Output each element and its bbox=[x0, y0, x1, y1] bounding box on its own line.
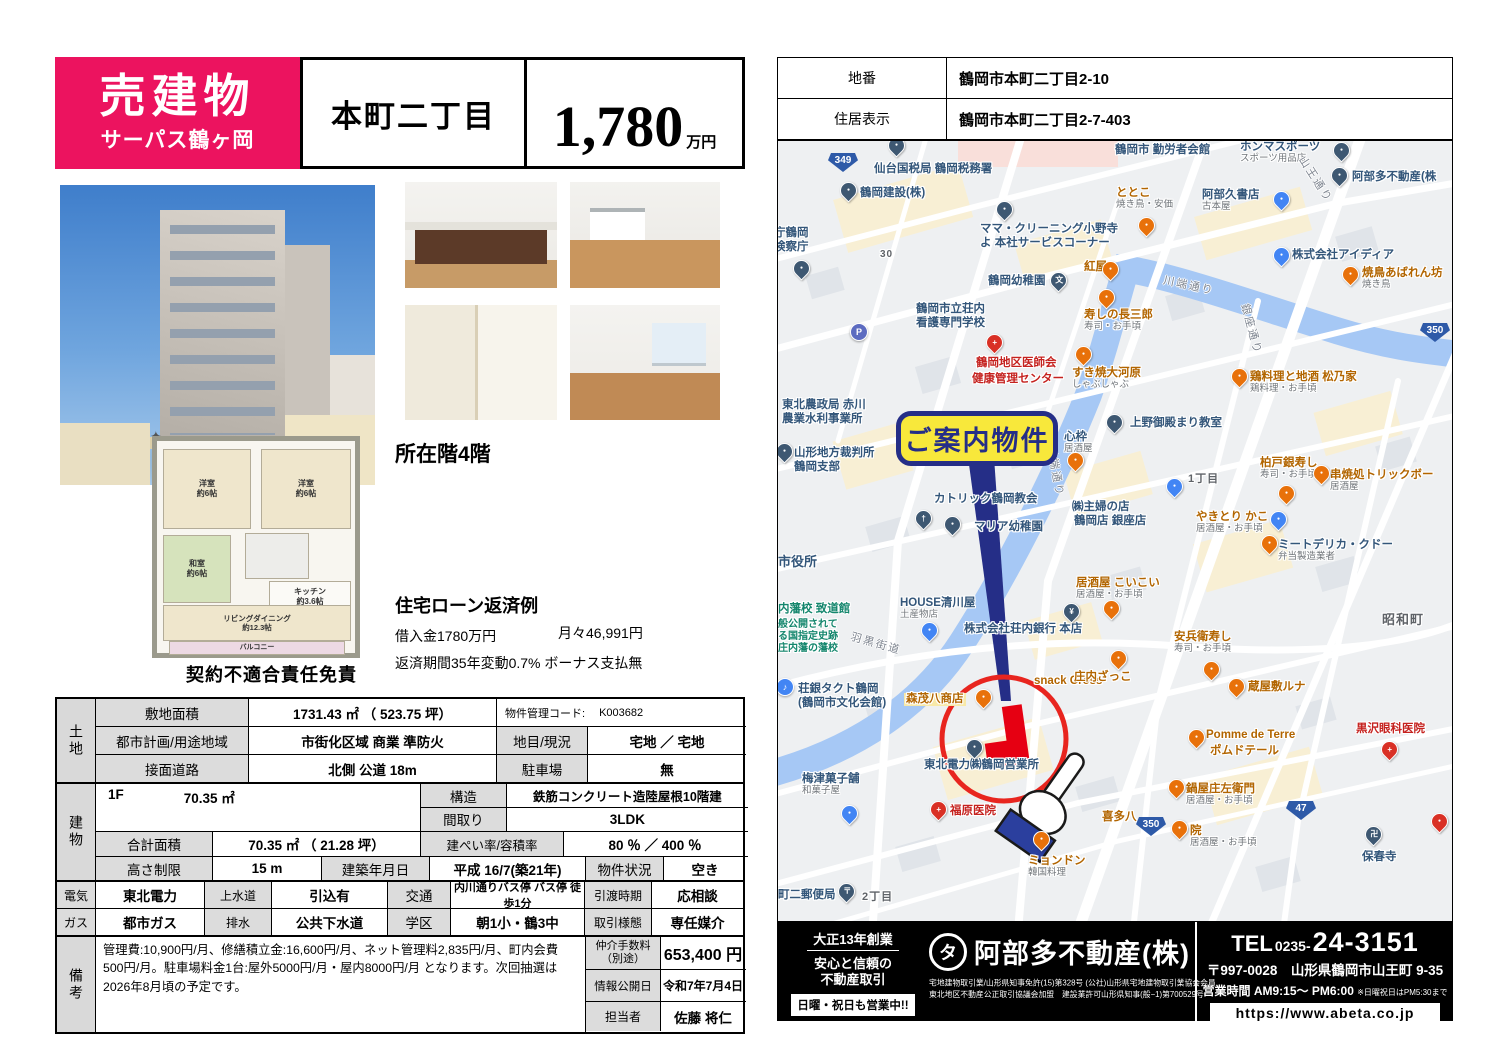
map-pin-food-icon[interactable]: ● bbox=[1184, 725, 1208, 749]
total-area-label: 合計面積 bbox=[96, 832, 212, 856]
map-pin-shop-icon[interactable]: ● bbox=[917, 618, 941, 642]
remarks-section-label: 備考 bbox=[57, 937, 96, 1032]
slogan-text: 安心と信頼の 不動産取引 bbox=[814, 956, 892, 989]
hours-note: ※日曜祝日はPM5:30まで bbox=[1357, 988, 1447, 997]
website-url[interactable]: https://www.abeta.co.jp bbox=[1210, 1003, 1441, 1023]
map-pin-poi-icon[interactable]: 文 bbox=[1046, 268, 1070, 292]
map-label[interactable]: 農業水利事業所 bbox=[782, 413, 863, 426]
land-section-label: 土地 bbox=[57, 699, 96, 782]
building-name: サーパス鶴ヶ岡 bbox=[101, 124, 255, 154]
map-label[interactable]: 町二郵便局 bbox=[778, 889, 836, 902]
lot-number-value: 鶴岡市本町二丁目2-10 bbox=[946, 58, 1452, 98]
remarks-section: 備考 管理費:10,900円/月、修繕積立金:16,600円/月、ネット管理料2… bbox=[55, 937, 745, 1034]
slogan-line2: 不動産取引 bbox=[820, 972, 885, 987]
transport-label: 交通 bbox=[387, 882, 450, 908]
map-label[interactable]: 梅津菓子舗和菓子屋 bbox=[802, 773, 860, 797]
company-name: 阿部多不動産(株) bbox=[974, 932, 1190, 971]
land-area-value: 1731.43 ㎡ （ 523.75 坪） bbox=[248, 699, 496, 726]
sale-type-banner: 売建物 サーパス鶴ヶ岡 bbox=[55, 57, 300, 169]
map-label[interactable]: 東北農政局 赤川 bbox=[782, 399, 866, 412]
map-pin-poi-icon[interactable]: 〒 bbox=[834, 879, 858, 903]
floorplan-bedroom2: 洋室 約6帖 bbox=[261, 449, 351, 529]
location-title: 本町二丁目 bbox=[300, 57, 527, 169]
tel-number: 24-3151 bbox=[1313, 927, 1419, 958]
map-pin-food-icon[interactable]: ● bbox=[971, 685, 995, 709]
map-label[interactable]: ミートデリカ・クドー弁当製造業者 bbox=[1278, 539, 1393, 563]
map-pin-red-icon[interactable]: + bbox=[982, 330, 1006, 354]
loan-amount: 借入金1780万円 bbox=[395, 626, 496, 646]
map-pin-food-icon[interactable]: ● bbox=[1199, 657, 1223, 681]
residence-row: 住居表示 鶴岡市本町二丁目2-7-403 bbox=[778, 98, 1452, 139]
map-pin-poi-icon[interactable]: ● bbox=[789, 256, 813, 280]
map-pin-poi-icon[interactable]: 卍 bbox=[1361, 822, 1385, 846]
license-info: 宅地建物取引業/山形県知事免許(15)第328号 (公社)山形県宅地建物取引業協… bbox=[929, 977, 1174, 1000]
handover-label: 引渡時期 bbox=[584, 882, 651, 908]
publish-date-value: 令和7年7月4日 bbox=[660, 970, 745, 1001]
map-pin-red-icon[interactable]: + bbox=[1377, 737, 1401, 761]
map-label[interactable]: 庄内藩の藩校 bbox=[778, 643, 838, 655]
loan-terms: 返済期間35年変動0.7% ボーナス支払無 bbox=[395, 653, 642, 673]
map-label[interactable]: 保春寺 bbox=[1362, 851, 1397, 864]
map-label[interactable]: 般公開されて bbox=[778, 619, 838, 631]
transaction-value: 専任媒介 bbox=[651, 909, 743, 935]
utilities-section: 電気 東北電力 上水道 引込有 交通 内川通りバス停 バス停 徒歩1分 引渡時期… bbox=[55, 882, 745, 937]
map-pin-poi-icon[interactable]: ¥ bbox=[1059, 599, 1083, 623]
map-label[interactable]: 喜多八 bbox=[1102, 811, 1137, 824]
map-pin-shop-icon[interactable]: ● bbox=[1269, 243, 1293, 267]
map-label[interactable]: 鶴岡店 銀座店 bbox=[1074, 515, 1146, 528]
tel-area-code: 0235- bbox=[1275, 938, 1311, 954]
map-label[interactable]: カトリック鶴岡教会 bbox=[934, 493, 1038, 506]
map-label[interactable]: 昭和町 bbox=[1382, 613, 1424, 628]
address-table: 地番 鶴岡市本町二丁目2-10 住居表示 鶴岡市本町二丁目2-7-403 bbox=[777, 57, 1453, 140]
map-pin-poi-icon[interactable]: ● bbox=[992, 197, 1016, 221]
layout-value: 3LDK bbox=[506, 808, 748, 831]
map-label[interactable]: 鶴岡市 勤労者会館 bbox=[1115, 144, 1210, 157]
parking-value: 無 bbox=[587, 755, 746, 782]
residence-label: 住居表示 bbox=[778, 99, 946, 139]
hours-text: 営業時間 AM9:15〜 PM6:00 bbox=[1203, 984, 1354, 998]
map-label[interactable]: 鶴岡支部 bbox=[794, 461, 840, 474]
footer-contact: TEL 0235- 24-3151 〒997-0028 山形県鶴岡市山王町 9-… bbox=[1195, 922, 1453, 1021]
map-pin-food-icon[interactable]: ● bbox=[1227, 364, 1251, 388]
agent-label: 担当者 bbox=[586, 1002, 660, 1031]
land-category-value: 宅地 ／ 宅地 bbox=[587, 727, 746, 754]
map-label[interactable]: 東北電力㈱鶴岡営業所 bbox=[924, 759, 1039, 772]
agent-value: 佐藤 将仁 bbox=[660, 1002, 745, 1031]
map-label[interactable]: 柏戸銀寿し寿司・お手頃 bbox=[1260, 457, 1318, 481]
map-pin-food-icon[interactable]: ● bbox=[1338, 262, 1362, 286]
map-label[interactable]: ママ・クリーニング小野寺 bbox=[980, 223, 1118, 236]
photo-living-dining bbox=[570, 182, 720, 288]
map-pin-food-icon[interactable]: ● bbox=[1274, 481, 1298, 505]
map-label[interactable]: 1丁目 bbox=[1188, 473, 1219, 486]
land-section: 土地 敷地面積 1731.43 ㎡ （ 523.75 坪） 物件管理コード: K… bbox=[55, 697, 745, 784]
map-label[interactable]: 2丁目 bbox=[862, 891, 893, 904]
map-label[interactable]: 健康管理センター bbox=[972, 373, 1064, 386]
map-pin-poi-icon[interactable]: ● bbox=[884, 140, 908, 158]
route-badge: 47 bbox=[1286, 801, 1316, 820]
map-label[interactable]: ミョンドン韓国料理 bbox=[1028, 855, 1086, 879]
status-value: 空き bbox=[663, 857, 746, 880]
spec-table: 土地 敷地面積 1731.43 ㎡ （ 523.75 坪） 物件管理コード: K… bbox=[55, 697, 745, 1034]
map-label[interactable]: 院居酒屋・お手頃 bbox=[1190, 825, 1257, 849]
map-label[interactable]: 焼鳥あばれん坊焼き鳥 bbox=[1362, 267, 1443, 291]
map-label[interactable]: 串焼処トリックボー居酒屋 bbox=[1330, 469, 1434, 493]
broker-fee-value: 653,400 円 bbox=[660, 937, 745, 969]
established-text: 大正13年創業 bbox=[807, 929, 898, 951]
loan-example-title: 住宅ローン返済例 bbox=[395, 592, 538, 618]
map-pin-poi-icon[interactable]: † bbox=[911, 506, 935, 530]
floor-plan: 洋室 約6帖 洋室 約6帖 和室 約6帖 キッチン 約3.6帖 リビングダイニン… bbox=[152, 436, 360, 658]
zoning-label: 都市計画/用途地域 bbox=[96, 727, 248, 754]
map[interactable]: 鶴岡市 勤労者会館ホンマスポーツスポーツ用品店阿部多不動産(株仙台国税局 鶴岡税… bbox=[777, 140, 1453, 922]
map-label[interactable]: 市役所 bbox=[778, 555, 817, 570]
map-label[interactable]: 阿部久書店古本屋 bbox=[1202, 189, 1260, 213]
floorplan-japanese-room: 和室 約6帖 bbox=[163, 535, 231, 603]
school-label: 学区 bbox=[387, 909, 450, 935]
status-label: 物件状況 bbox=[585, 857, 663, 880]
map-label[interactable]: 株式会社荘内銀行 本店 bbox=[964, 623, 1082, 636]
height-limit-label: 高さ制限 bbox=[96, 857, 212, 880]
structure-value: 鉄筋コンクリート造陸屋根10階建 bbox=[506, 784, 748, 807]
map-label[interactable]: 上野御殿まり教室 bbox=[1130, 417, 1222, 430]
map-overlay: 鶴岡市 勤労者会館ホンマスポーツスポーツ用品店阿部多不動産(株仙台国税局 鶴岡税… bbox=[778, 141, 1452, 921]
price-value: 1,780 bbox=[553, 98, 684, 156]
map-label[interactable]: 検察庁 bbox=[777, 241, 809, 254]
map-label[interactable]: 株式会社アイディア bbox=[1292, 249, 1394, 262]
electric-value: 東北電力 bbox=[95, 882, 204, 908]
map-pin-shop-icon[interactable]: ● bbox=[1269, 187, 1293, 211]
map-label[interactable]: 鍋屋庄左衛門居酒屋・お手頃 bbox=[1186, 783, 1255, 807]
map-pin-red-icon[interactable]: + bbox=[926, 797, 950, 821]
map-label[interactable]: ㈱主婦の店 bbox=[1072, 501, 1130, 514]
photo-kitchen bbox=[405, 182, 557, 288]
map-label[interactable]: 居酒屋 こいこい居酒屋・お手頃 bbox=[1076, 577, 1160, 601]
footer-left: 大正13年創業 安心と信頼の 不動産取引 日曜・祝日も営業中!! bbox=[777, 922, 929, 1021]
map-label[interactable]: 黒沢眼科医院 bbox=[1356, 723, 1425, 736]
road-frontage-label: 接面道路 bbox=[96, 755, 248, 782]
map-pin-shop-icon[interactable]: ● bbox=[1162, 474, 1186, 498]
map-label[interactable]: 鶴岡地区医師会 bbox=[976, 357, 1057, 370]
map-label[interactable]: 鶴岡幼稚園 bbox=[988, 275, 1046, 288]
building-section: 建物 1F 70.35 ㎡ 構造 鉄筋コンクリート造陸屋根10階建 間取り bbox=[55, 784, 745, 882]
page: 売建物 サーパス鶴ヶ岡 本町二丁目 1,780 万円 ✦ 洋室 約6帖 洋室 約… bbox=[0, 0, 1505, 1063]
road-label: 銀座通り bbox=[1238, 302, 1267, 356]
floorplan-living-dining: リビングダイニング 約12.3帖 bbox=[163, 605, 351, 641]
building-section-label: 建物 bbox=[57, 784, 96, 880]
map-pin-food-icon[interactable]: ● bbox=[1164, 775, 1188, 799]
floor1-area-cell: 1F 70.35 ㎡ bbox=[96, 784, 420, 831]
school-value: 朝1小・鶴3中 bbox=[450, 909, 584, 935]
road-label: 川端通り bbox=[1162, 272, 1216, 298]
land-category-label: 地目/現況 bbox=[496, 727, 587, 754]
license-line1: 宅地建物取引業/山形県知事免許(15)第328号 (公社)山形県宅地建物取引業協… bbox=[929, 978, 1216, 987]
tel-label: TEL bbox=[1231, 931, 1273, 957]
map-pin-poi-icon[interactable]: ● bbox=[1329, 140, 1353, 163]
company-address: 〒997-0028 山形県鶴岡市山王町 9-35 bbox=[1207, 959, 1443, 979]
business-hours: 営業時間 AM9:15〜 PM6:00 ※日曜祝日はPM5:30まで bbox=[1203, 982, 1448, 999]
floorplan-bedroom1: 洋室 約6帖 bbox=[163, 449, 251, 529]
floorplan-bath bbox=[245, 533, 309, 579]
phone-number: TEL 0235- 24-3151 bbox=[1231, 927, 1418, 958]
handover-value: 応相談 bbox=[651, 882, 743, 908]
property-code-label: 物件管理コード: bbox=[505, 705, 585, 721]
total-area-value: 70.35 ㎡ （ 21.28 坪） bbox=[212, 832, 420, 856]
map-label[interactable]: 庁鶴岡 bbox=[777, 227, 809, 240]
map-pin-shop-icon[interactable]: ● bbox=[1266, 507, 1290, 531]
slogan-line1: 安心と信頼の bbox=[814, 956, 892, 971]
map-label[interactable]: 荘銀タクト鶴岡 bbox=[798, 683, 879, 696]
route-badge: 350 bbox=[1136, 817, 1166, 836]
map-label[interactable]: ととこ焼き鳥・安価 bbox=[1116, 187, 1173, 211]
coverage-ratio-label: 建ぺい率/容積率 bbox=[420, 832, 563, 856]
listing-header: 売建物 サーパス鶴ヶ岡 本町二丁目 1,780 万円 bbox=[55, 57, 745, 169]
coverage-ratio-value: 80 ％ ／ 400 ％ bbox=[563, 832, 746, 856]
floor-location: 所在階4階 bbox=[395, 438, 491, 468]
water-value: 引込有 bbox=[271, 882, 387, 908]
map-pin-shop-icon[interactable]: ● bbox=[837, 801, 861, 825]
map-label[interactable]: HOUSE清川屋土産物店 bbox=[900, 597, 975, 621]
map-pin-food-icon[interactable]: ● bbox=[1071, 342, 1095, 366]
map-label[interactable]: 山形地方裁判所 bbox=[794, 447, 875, 460]
map-label[interactable]: 鶏料理と地酒 松乃家鶏料理・お手頃 bbox=[1250, 371, 1357, 395]
map-pin-food-icon[interactable]: ● bbox=[1167, 816, 1191, 840]
parking-label: 駐車場 bbox=[496, 755, 587, 782]
map-pin-music-icon[interactable]: ♪ bbox=[777, 678, 794, 696]
property-callout: ご案内物件 bbox=[896, 411, 1058, 466]
floorplan-balcony: バルコニー bbox=[169, 641, 345, 655]
lot-number-row: 地番 鶴岡市本町二丁目2-10 bbox=[778, 58, 1452, 98]
floor1-label: 1F bbox=[108, 787, 124, 802]
map-label[interactable]: 阿部多不動産(株 bbox=[1352, 171, 1436, 184]
map-label[interactable]: マリア幼稚園 bbox=[974, 521, 1043, 534]
price-unit: 万円 bbox=[686, 131, 716, 152]
map-label[interactable]: 蔵屋敷ルナ bbox=[1248, 681, 1306, 694]
map-label[interactable]: やきとり かこ居酒屋・お手頃 bbox=[1196, 511, 1268, 535]
map-label[interactable]: る国指定史跡 bbox=[778, 631, 838, 643]
price-box: 1,780 万円 bbox=[527, 57, 745, 169]
map-label[interactable]: 福原医院 bbox=[950, 805, 996, 818]
map-pin-food-icon[interactable]: ● bbox=[1094, 285, 1118, 309]
map-label[interactable]: 30 bbox=[880, 249, 893, 261]
map-pin-food-icon[interactable]: ● bbox=[1134, 213, 1158, 237]
company-logo: タ bbox=[929, 933, 967, 971]
property-code-cell: 物件管理コード: K003682 bbox=[496, 699, 746, 726]
road-frontage-value: 北側 公道 18m bbox=[248, 755, 496, 782]
built-date-value: 平成 16/7(築21年) bbox=[429, 857, 585, 880]
map-label[interactable]: ポムドテール bbox=[1210, 745, 1279, 758]
map-pin-park-icon[interactable]: P bbox=[850, 323, 868, 341]
map-label[interactable]: 鶴岡建設(株) bbox=[860, 187, 925, 200]
route-badge: 350 bbox=[1420, 323, 1450, 342]
contract-disclaimer: 契約不適合責任免責 bbox=[186, 661, 357, 687]
footer-brand: タ 阿部多不動産(株) 宅地建物取引業/山形県知事免許(15)第328号 (公社… bbox=[929, 922, 1195, 1021]
map-label[interactable]: 鶴岡市立荘内 bbox=[916, 303, 985, 316]
map-pin-food-icon[interactable]: ● bbox=[1029, 827, 1053, 851]
map-label[interactable]: 庄内ざっこ bbox=[1074, 671, 1132, 684]
map-label[interactable]: 安兵衛寿し寿司・お手頃 bbox=[1174, 631, 1232, 655]
license-line2: 東北地区不動産公正取引協議会加盟 建設業許可山形県知事(般−1)第700529号 bbox=[929, 990, 1204, 999]
road-label: 羽黒街道 bbox=[849, 628, 903, 658]
drainage-label: 排水 bbox=[204, 909, 271, 935]
land-area-label: 敷地面積 bbox=[96, 699, 248, 726]
map-pin-poi-icon[interactable]: ● bbox=[836, 178, 860, 202]
map-pin-food-icon[interactable]: ● bbox=[1224, 674, 1248, 698]
sale-type: 売建物 bbox=[100, 72, 256, 120]
map-pin-poi-icon[interactable]: ● bbox=[1327, 163, 1351, 187]
map-label[interactable]: 内藩校 致道館 bbox=[778, 603, 850, 616]
map-label[interactable]: 森茂八商店 bbox=[904, 693, 966, 706]
height-limit-value: 15 m bbox=[212, 857, 321, 880]
map-pin-poi-icon[interactable]: ● bbox=[940, 512, 964, 536]
gas-value: 都市ガス bbox=[95, 909, 204, 935]
map-pin-food-icon[interactable]: ● bbox=[1106, 646, 1130, 670]
transport-value: 内川通りバス停 バス停 徒歩1分 bbox=[450, 882, 584, 908]
map-pin-poi-icon[interactable]: ● bbox=[962, 735, 986, 759]
drainage-value: 公共下水道 bbox=[271, 909, 387, 935]
transaction-label: 取引様態 bbox=[584, 909, 651, 935]
map-label[interactable]: 寿しの長三郎寿司・お手頃 bbox=[1084, 309, 1153, 333]
water-label: 上水道 bbox=[204, 882, 271, 908]
publish-date-label: 情報公開日 bbox=[586, 970, 660, 1001]
gas-label: ガス bbox=[57, 909, 95, 935]
property-code-value: K003682 bbox=[599, 707, 643, 719]
open-days-badge: 日曜・祝日も営業中!! bbox=[791, 994, 914, 1016]
map-label[interactable]: (鶴岡市文化会館) bbox=[798, 697, 886, 710]
remarks-text: 管理費:10,900円/月、修繕積立金:16,600円/月、ネット管理料2,83… bbox=[96, 937, 585, 1032]
map-label[interactable]: すき焼大河原しゃぶしゃぶ bbox=[1072, 367, 1141, 391]
map-label[interactable]: 仙台国税局 鶴岡税務署 bbox=[874, 163, 992, 176]
zoning-value: 市街化区域 商業 準防火 bbox=[248, 727, 496, 754]
layout-label: 間取り bbox=[421, 808, 506, 831]
built-date-label: 建築年月日 bbox=[321, 857, 429, 880]
floor1-area: 70.35 ㎡ bbox=[184, 787, 235, 807]
map-pin-red-icon[interactable]: ● bbox=[1427, 809, 1451, 833]
agency-footer: 大正13年創業 安心と信頼の 不動産取引 日曜・祝日も営業中!! タ 阿部多不動… bbox=[777, 922, 1453, 1021]
photo-tatami-room bbox=[405, 305, 557, 420]
electric-label: 電気 bbox=[57, 882, 95, 908]
broker-fee-label: 仲介手数料 （別途） bbox=[586, 937, 660, 969]
route-badge: 349 bbox=[828, 153, 858, 172]
structure-label: 構造 bbox=[421, 784, 506, 807]
photo-western-room bbox=[570, 305, 720, 420]
residence-value: 鶴岡市本町二丁目2-7-403 bbox=[946, 99, 1452, 139]
map-pin-poi-icon[interactable]: ● bbox=[1102, 410, 1126, 434]
lot-number-label: 地番 bbox=[778, 58, 946, 98]
map-label[interactable]: よ 本社サービスコーナー bbox=[980, 237, 1110, 250]
map-label[interactable]: Pomme de Terre bbox=[1206, 729, 1295, 742]
loan-monthly: 月々46,991円 bbox=[558, 623, 643, 643]
map-label[interactable]: 看護専門学校 bbox=[916, 317, 985, 330]
